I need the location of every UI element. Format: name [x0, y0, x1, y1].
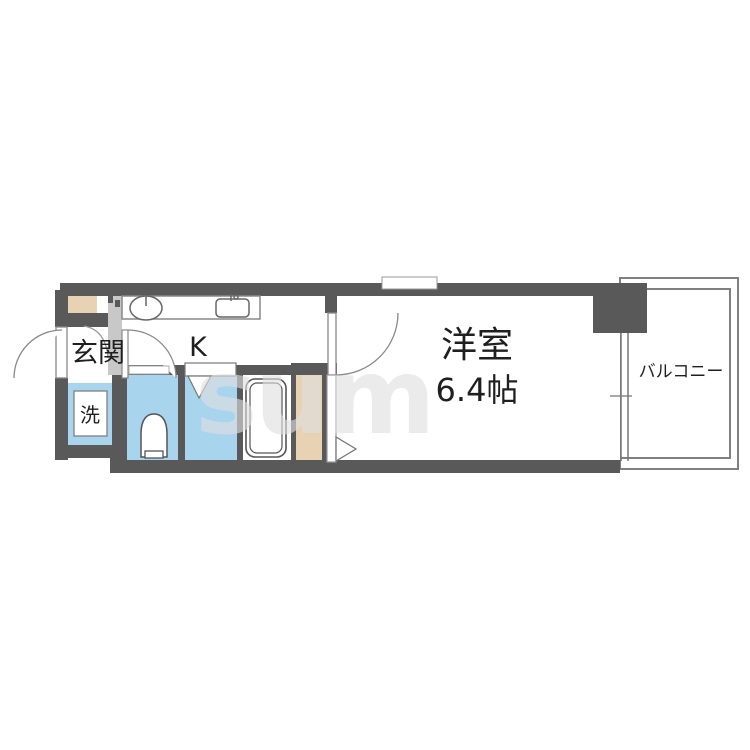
laundry-label: 洗: [80, 403, 100, 427]
watermark-text: sum: [195, 336, 433, 458]
shoe-cabinet: [66, 296, 97, 315]
wall-under-cabinet: [60, 313, 108, 327]
wall-pillar: [593, 283, 647, 333]
toilet-door: [129, 366, 169, 374]
wall-bottom-entrance: [55, 445, 117, 458]
wall-door-stub: [325, 296, 337, 313]
wall-toilet-left: [112, 375, 127, 462]
balcony-label: バルコニー: [639, 362, 724, 382]
western-room-size: 6.4帖: [436, 371, 519, 409]
genkan-label: 玄関: [71, 338, 125, 369]
floorplan-drawing: 玄関 洗 K 洋室 6.4帖 バルコニー sum: [0, 0, 750, 750]
toilet-base: [145, 451, 163, 458]
wall-top: [60, 283, 593, 296]
western-room-label: 洋室: [441, 325, 513, 366]
front-door-leaf: [56, 327, 67, 378]
top-wall-window: [382, 277, 437, 289]
wall-bottom-main: [110, 460, 620, 473]
floorplan-canvas: 玄関 洗 K 洋室 6.4帖 バルコニー sum: [0, 0, 750, 750]
wall-toilet-washroom: [178, 375, 185, 462]
kitchen-sink: [216, 299, 249, 317]
